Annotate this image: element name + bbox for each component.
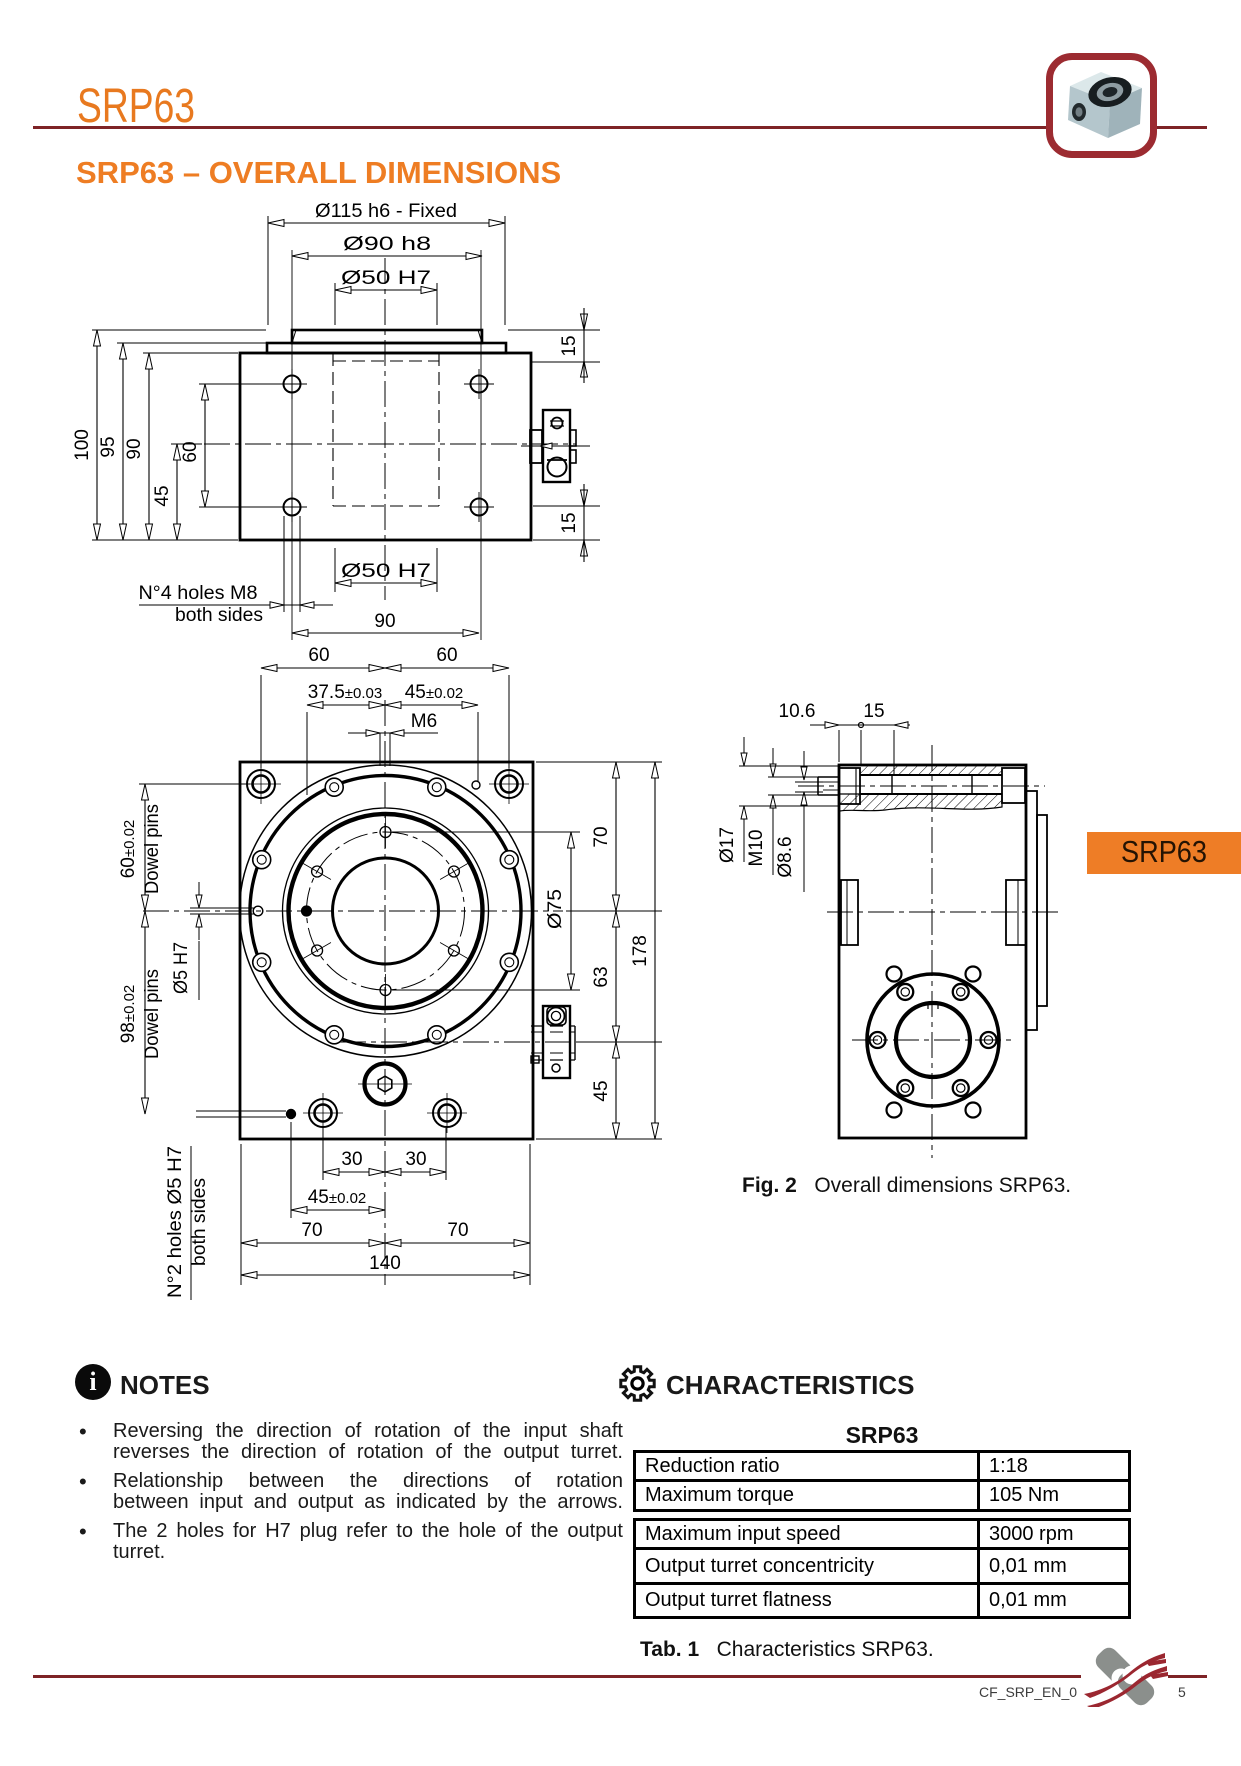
svg-text:140: 140: [369, 1253, 401, 1274]
svg-text:30: 30: [405, 1149, 426, 1170]
svg-text:60: 60: [180, 441, 201, 462]
svg-text:90: 90: [124, 438, 145, 459]
svg-text:Ø90 h8: Ø90 h8: [343, 234, 431, 255]
svg-text:15: 15: [559, 512, 580, 533]
svg-text:60: 60: [308, 645, 329, 666]
svg-text:95: 95: [98, 436, 119, 457]
svg-text:Ø50 H7: Ø50 H7: [341, 561, 431, 582]
svg-text:Dowel pins: Dowel pins: [142, 969, 163, 1059]
svg-text:90: 90: [374, 611, 395, 632]
svg-text:M6: M6: [411, 711, 437, 732]
svg-text:98±0.02: 98±0.02: [118, 985, 139, 1044]
svg-text:both sides: both sides: [189, 1178, 210, 1266]
svg-text:Ø17: Ø17: [717, 827, 738, 863]
svg-text:SRP63: SRP63: [1121, 834, 1207, 869]
svg-text:70: 70: [447, 1220, 468, 1241]
svg-text:15: 15: [863, 701, 884, 722]
svg-text:63: 63: [591, 966, 612, 987]
svg-text:37.5±0.03: 37.5±0.03: [308, 682, 382, 703]
svg-text:45±0.02: 45±0.02: [308, 1187, 367, 1208]
svg-text:Dowel pins: Dowel pins: [142, 804, 163, 894]
svg-text:Ø75: Ø75: [545, 889, 566, 929]
svg-text:178: 178: [630, 935, 651, 967]
svg-text:N°4 holes M8: N°4 holes M8: [139, 583, 258, 604]
svg-text:60: 60: [436, 645, 457, 666]
svg-text:70: 70: [301, 1220, 322, 1241]
svg-text:both sides: both sides: [175, 605, 263, 626]
svg-text:Ø50 H7: Ø50 H7: [341, 268, 431, 289]
svg-text:100: 100: [72, 429, 93, 461]
svg-text:M10: M10: [746, 830, 767, 867]
svg-text:Ø115 h6 - Fixed: Ø115 h6 - Fixed: [315, 201, 457, 222]
svg-text:70: 70: [591, 826, 612, 847]
svg-text:N°2 holes Ø5 H7: N°2 holes Ø5 H7: [165, 1146, 186, 1298]
svg-text:15: 15: [559, 335, 580, 356]
svg-text:30: 30: [341, 1149, 362, 1170]
svg-text:Ø8.6: Ø8.6: [775, 836, 796, 877]
svg-text:45: 45: [152, 485, 173, 506]
svg-text:Ø5 H7: Ø5 H7: [171, 942, 192, 994]
svg-text:45±0.02: 45±0.02: [405, 682, 464, 703]
svg-text:60±0.02: 60±0.02: [118, 820, 139, 879]
svg-text:10.6: 10.6: [779, 701, 816, 722]
svg-text:45: 45: [591, 1080, 612, 1101]
